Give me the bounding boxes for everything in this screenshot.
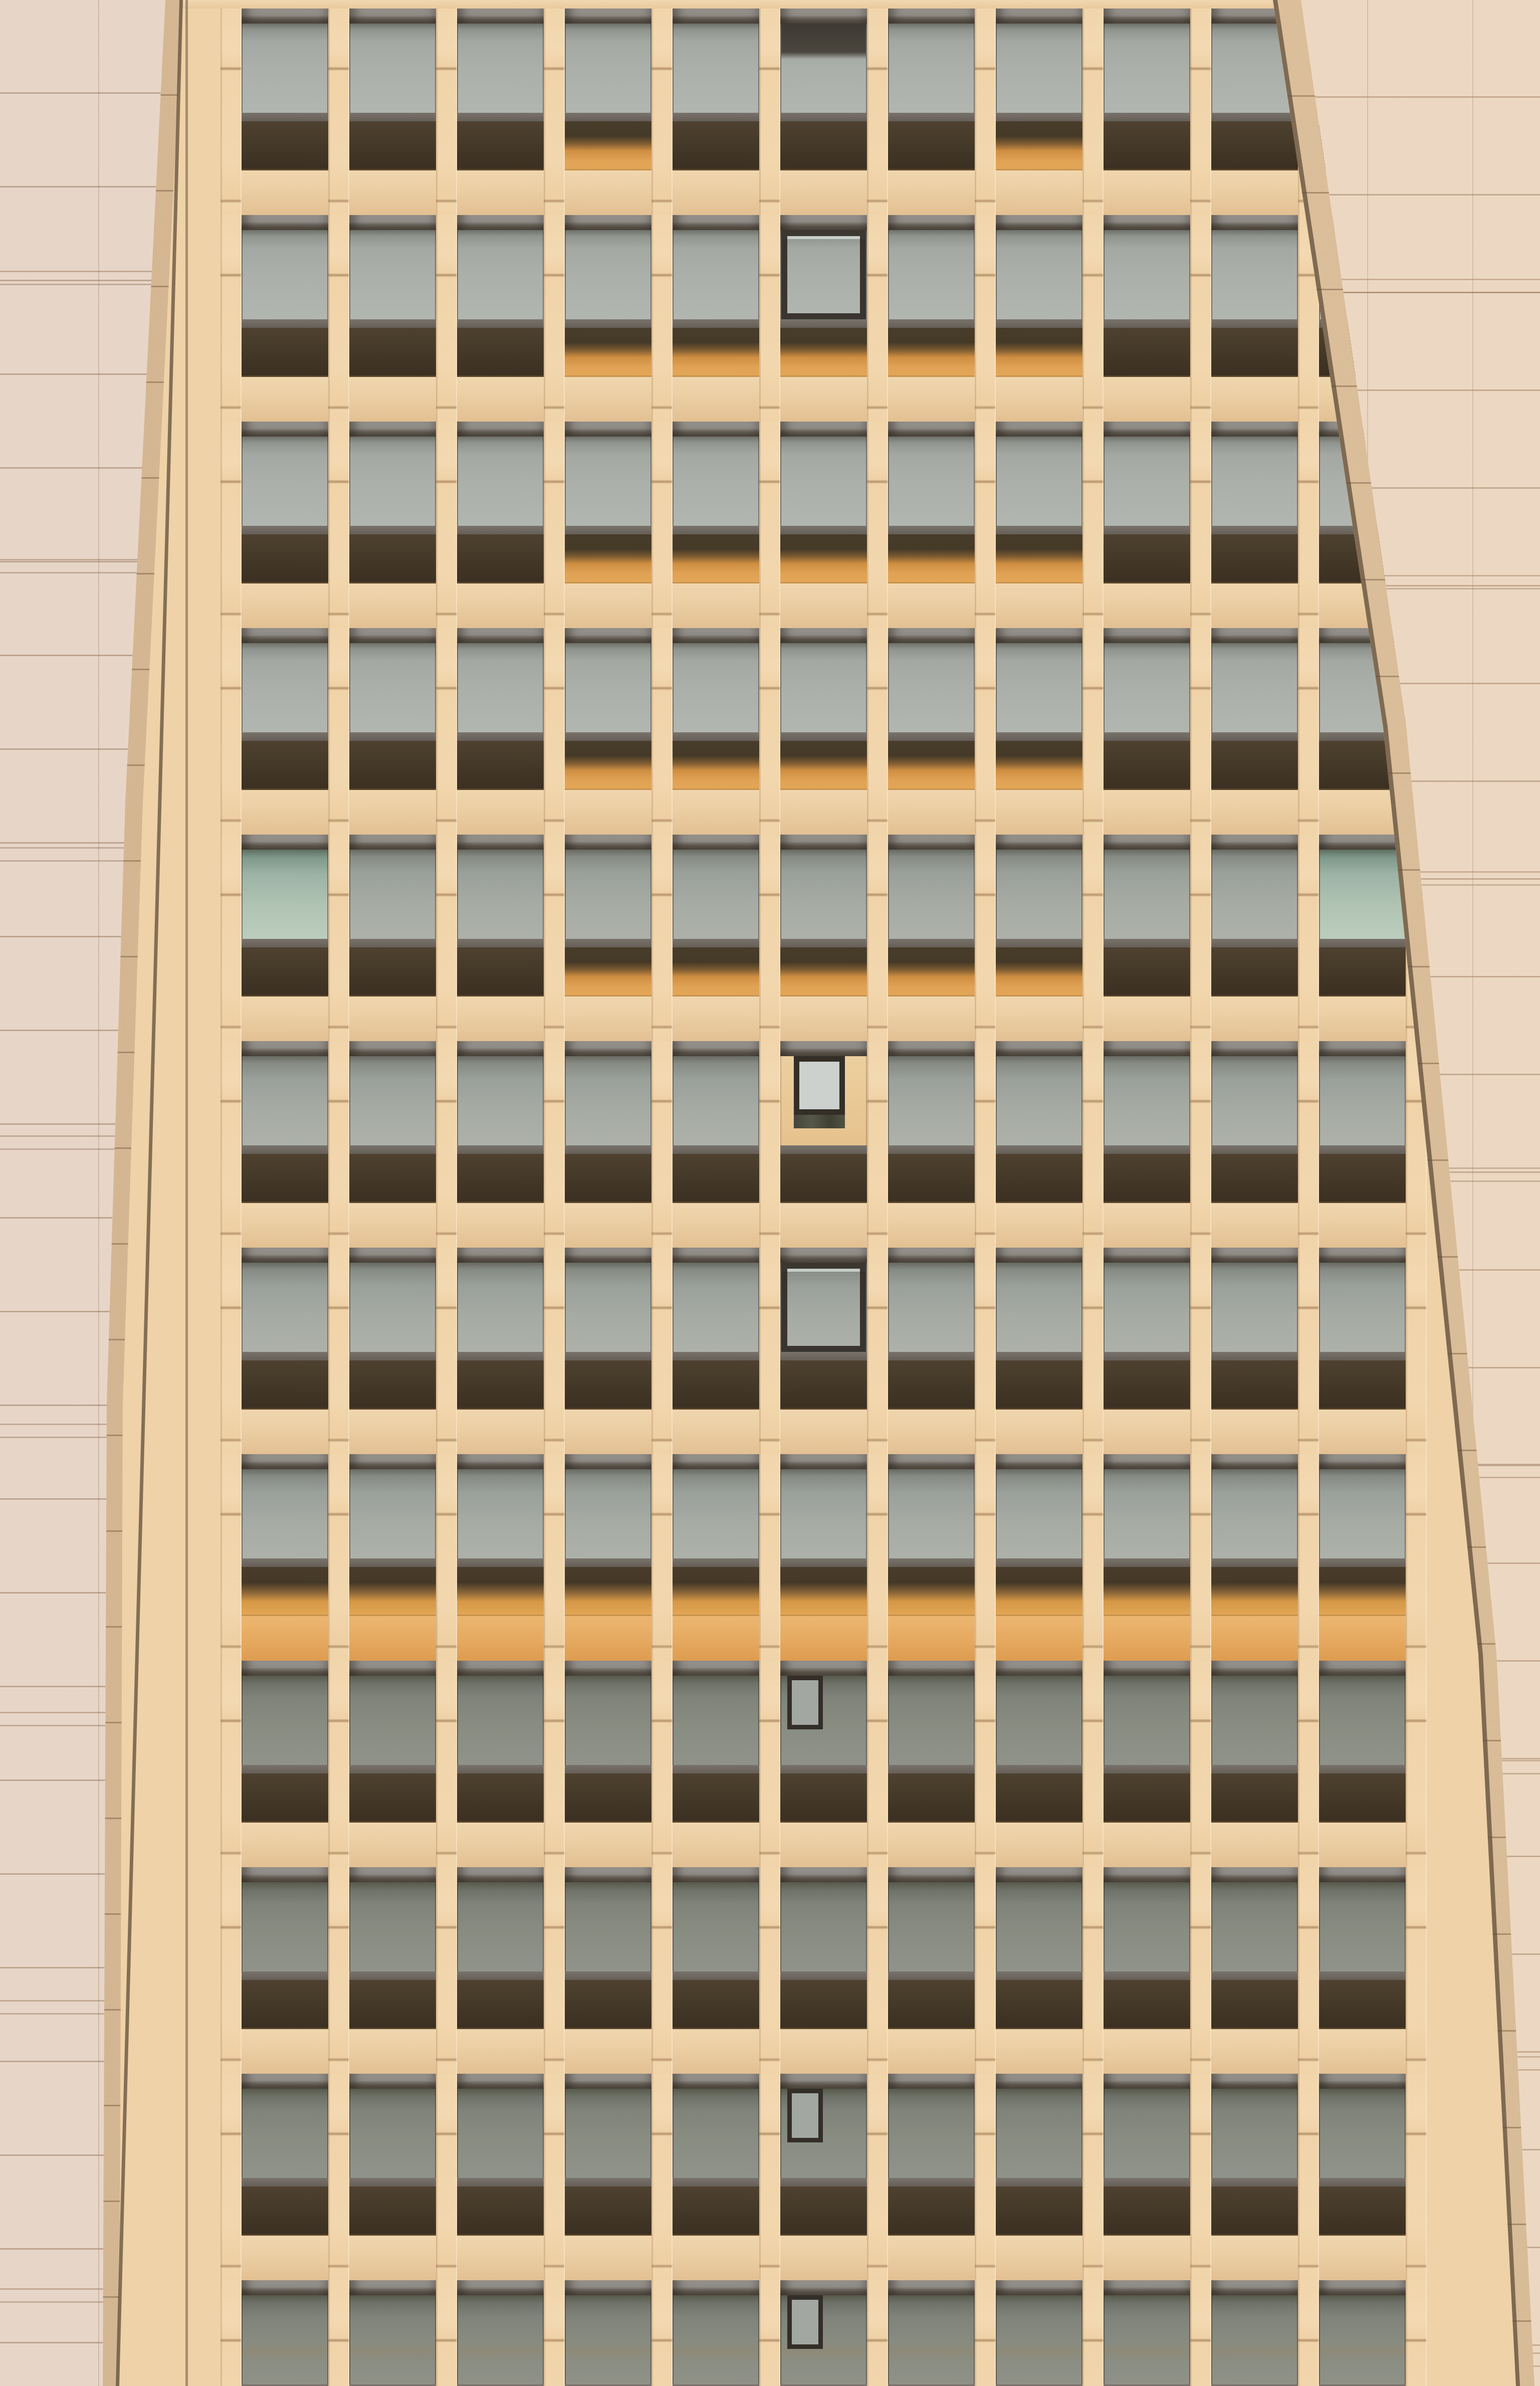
- window-lintel: [1211, 2280, 1298, 2295]
- window-sill: [996, 2178, 1082, 2186]
- mullion: [544, 1661, 565, 1867]
- window-glass: [780, 643, 867, 732]
- window-glass: [457, 1676, 544, 1765]
- recess-panel: [673, 1616, 759, 1661]
- spandrel-panel: [996, 1154, 1082, 1203]
- spandrel-panel: [1104, 1360, 1190, 1410]
- window-glass: [457, 643, 544, 732]
- window-sill: [242, 732, 328, 741]
- spandrel-panel: [780, 947, 867, 997]
- window-sill: [457, 1971, 544, 1980]
- window-glass: [565, 24, 651, 113]
- window-glass: [673, 1676, 759, 1765]
- spandrel-panel: [1104, 1154, 1190, 1203]
- recess-panel: [242, 2029, 328, 2074]
- window-bay: [1104, 1041, 1190, 1248]
- window-bay: [457, 628, 544, 835]
- spandrel-panel: [457, 1773, 544, 1823]
- opened-window-pane: [794, 1056, 844, 1115]
- spandrel-panel: [673, 534, 759, 583]
- window-sill: [242, 1971, 328, 1980]
- recess-panel: [242, 1616, 328, 1661]
- window-glass: [242, 230, 328, 319]
- mullion: [975, 9, 996, 215]
- window-glass: [1104, 1056, 1190, 1145]
- mullion: [436, 9, 457, 215]
- window-bay: [996, 628, 1082, 835]
- recess-panel: [1104, 377, 1190, 422]
- window-glass: [673, 2089, 759, 2178]
- mullion: [1082, 422, 1104, 628]
- recess-panel: [457, 377, 544, 422]
- window-sill: [457, 732, 544, 741]
- window-glass: [457, 2295, 544, 2384]
- window-sill: [780, 1558, 867, 1567]
- spandrel-panel: [242, 534, 328, 583]
- window-sill: [1211, 1971, 1298, 1980]
- window-glass: [888, 1469, 975, 1558]
- mullion: [328, 2280, 349, 2386]
- window-glass: [673, 643, 759, 732]
- mullion: [1190, 835, 1211, 1041]
- window-sill: [349, 1558, 436, 1567]
- window-bay: [673, 1248, 759, 1454]
- window-sill: [565, 113, 651, 121]
- window-glass: [565, 1882, 651, 1971]
- mullion: [328, 1248, 349, 1454]
- window-bay: [888, 1867, 975, 2074]
- window-sill: [673, 526, 759, 534]
- spandrel-panel: [673, 741, 759, 790]
- window-bay: [1104, 422, 1190, 628]
- window-sill: [457, 2178, 544, 2186]
- window-sill: [780, 1352, 867, 1360]
- opened-window-pane: [787, 1676, 823, 1729]
- window-glass: [349, 230, 436, 319]
- mullion: [221, 215, 242, 422]
- mullion: [221, 422, 242, 628]
- spandrel-panel: [996, 1360, 1082, 1410]
- mullion: [867, 1454, 888, 1661]
- window-lintel: [780, 1248, 867, 1263]
- mullion: [221, 1867, 242, 2074]
- recess-panel: [1211, 1410, 1298, 1454]
- recess-panel: [888, 1410, 975, 1454]
- window-lintel: [888, 1867, 975, 1882]
- window-glass: [888, 850, 975, 939]
- window-lintel: [1319, 1041, 1406, 1056]
- spandrel-panel: [349, 1360, 436, 1410]
- window-glass: [457, 850, 544, 939]
- mullion: [651, 835, 673, 1041]
- window-bay: [1104, 1454, 1190, 1661]
- mullion: [867, 835, 888, 1041]
- mullion: [1298, 835, 1319, 1041]
- recess-panel: [673, 583, 759, 628]
- window-lintel: [349, 1041, 436, 1056]
- spandrel-panel: [1319, 1773, 1406, 1823]
- recess-panel: [349, 1823, 436, 1867]
- window-bay: [242, 215, 328, 422]
- mullion: [759, 835, 780, 1041]
- mullion: [544, 1041, 565, 1248]
- window-bay: [996, 2280, 1082, 2386]
- window-lintel: [673, 9, 759, 24]
- window-lintel: [242, 9, 328, 24]
- window-sill: [1211, 1145, 1298, 1154]
- window-sill: [565, 319, 651, 328]
- window-lintel: [1104, 1041, 1190, 1056]
- window-sill: [1211, 1765, 1298, 1773]
- window-glass: [888, 1263, 975, 1352]
- window-bay: [780, 835, 867, 1041]
- window-lintel: [1104, 835, 1190, 850]
- spandrel-panel: [1319, 1567, 1406, 1616]
- window-sill: [457, 939, 544, 947]
- window-bay: [565, 1661, 651, 1867]
- mullion: [867, 9, 888, 215]
- tower-curtain-wall: [115, 0, 1540, 2386]
- mullion: [1298, 628, 1319, 835]
- window-bay: [242, 2280, 328, 2386]
- window-glass: [888, 24, 975, 113]
- spandrel-panel: [888, 741, 975, 790]
- spandrel-panel: [996, 1773, 1082, 1823]
- window-bay: [1104, 2074, 1190, 2280]
- spandrel-panel: [1211, 2186, 1298, 2236]
- window-sill: [780, 939, 867, 947]
- window-lintel: [1211, 835, 1298, 850]
- window-glass: [1104, 850, 1190, 939]
- spandrel-panel: [1211, 121, 1298, 170]
- window-bay: [888, 1454, 975, 1661]
- window-sill: [888, 113, 975, 121]
- window-bay: [888, 1041, 975, 1248]
- window-bay: [673, 2074, 759, 2280]
- window-sill: [996, 319, 1082, 328]
- window-lintel: [565, 1867, 651, 1882]
- window-bay: [457, 215, 544, 422]
- window-lintel: [996, 215, 1082, 230]
- mullion: [975, 1454, 996, 1661]
- spandrel-panel: [673, 1154, 759, 1203]
- spandrel-panel: [349, 1154, 436, 1203]
- window-glass: [565, 1056, 651, 1145]
- window-glass: [673, 1469, 759, 1558]
- mullion: [759, 1041, 780, 1248]
- mullion: [1298, 2074, 1319, 2280]
- window-glass: [888, 1882, 975, 1971]
- window-lintel: [780, 2074, 867, 2089]
- window-lintel: [565, 835, 651, 850]
- spandrel-panel: [349, 741, 436, 790]
- recess-panel: [242, 170, 328, 215]
- spandrel-panel: [888, 947, 975, 997]
- window-box-sill: [794, 1115, 844, 1128]
- window-sill: [673, 319, 759, 328]
- window-glass: [1104, 1469, 1190, 1558]
- window-glass: [673, 1263, 759, 1352]
- window-glass: [996, 1263, 1082, 1352]
- recess-panel: [349, 170, 436, 215]
- mullion: [867, 1867, 888, 2074]
- spandrel-panel: [349, 328, 436, 377]
- window-lintel: [457, 1454, 544, 1469]
- window-lintel: [996, 1454, 1082, 1469]
- window-sill: [242, 1352, 328, 1360]
- window-sill: [1211, 1558, 1298, 1567]
- window-glass: [1211, 1469, 1298, 1558]
- recess-panel: [673, 377, 759, 422]
- recess-panel: [888, 583, 975, 628]
- window-sill: [888, 1558, 975, 1567]
- window-bay: [242, 1041, 328, 1248]
- window-bay: [888, 422, 975, 628]
- window-sill: [457, 1765, 544, 1773]
- window-lintel: [349, 835, 436, 850]
- recess-panel: [780, 997, 867, 1041]
- window-lintel: [242, 1248, 328, 1263]
- window-glass: [996, 850, 1082, 939]
- window-sill: [242, 113, 328, 121]
- recess-panel: [349, 377, 436, 422]
- recess-panel: [565, 583, 651, 628]
- window-bay: [1104, 215, 1190, 422]
- window-bay: [457, 835, 544, 1041]
- recess-panel: [242, 790, 328, 835]
- mullion: [651, 215, 673, 422]
- window-sill: [1104, 113, 1190, 121]
- recess-panel: [1104, 1616, 1190, 1661]
- window-lintel: [349, 1867, 436, 1882]
- window-sill: [1104, 1558, 1190, 1567]
- spandrel-panel: [673, 2186, 759, 2236]
- recess-panel: [457, 1616, 544, 1661]
- recess-panel: [1104, 2029, 1190, 2074]
- spandrel-panel: [1104, 534, 1190, 583]
- floor-row: [115, 1867, 1540, 2074]
- window-lintel: [242, 628, 328, 643]
- mullion: [975, 422, 996, 628]
- recess-panel: [1319, 2029, 1406, 2074]
- window-glass: [1104, 1676, 1190, 1765]
- floor-row: [115, 2280, 1540, 2386]
- recess-panel: [1104, 2236, 1190, 2280]
- window-lintel: [1104, 1867, 1190, 1882]
- recess-panel: [1104, 1410, 1190, 1454]
- window-sill: [1104, 1352, 1190, 1360]
- mullion: [759, 215, 780, 422]
- window-bay: [1211, 1041, 1298, 1248]
- window-lintel: [565, 1454, 651, 1469]
- window-bay: [349, 835, 436, 1041]
- window-lintel: [780, 2280, 867, 2295]
- mullion: [1082, 1867, 1104, 2074]
- window-glass: [349, 2089, 436, 2178]
- mullion: [221, 2280, 242, 2386]
- window-bay: [888, 9, 975, 215]
- mullion: [328, 215, 349, 422]
- spandrel-panel: [780, 2186, 867, 2236]
- window-sill: [1319, 1971, 1406, 1980]
- window-bay: [457, 1867, 544, 2074]
- mullion: [1082, 1661, 1104, 1867]
- window-sill: [242, 319, 328, 328]
- mullion: [867, 1248, 888, 1454]
- window-glass: [1319, 2295, 1406, 2384]
- mullion: [1190, 422, 1211, 628]
- window-lintel: [888, 1248, 975, 1263]
- mullion: [436, 628, 457, 835]
- window-glass: [780, 1882, 867, 1971]
- window-lintel: [1319, 1454, 1406, 1469]
- window-bay: [780, 215, 867, 422]
- mullion: [975, 835, 996, 1041]
- mullion: [1406, 1661, 1427, 1867]
- recess-panel: [1211, 170, 1298, 215]
- window-lintel: [349, 1661, 436, 1676]
- spandrel-panel: [565, 947, 651, 997]
- window-bay: [349, 215, 436, 422]
- recess-panel: [888, 997, 975, 1041]
- mullion: [975, 628, 996, 835]
- window-sill: [780, 2178, 867, 2186]
- mullion: [1082, 2280, 1104, 2386]
- window-lintel: [888, 2280, 975, 2295]
- spandrel-panel: [565, 328, 651, 377]
- window-bay: [996, 1454, 1082, 1661]
- spandrel-panel: [780, 1154, 867, 1203]
- mullion: [1406, 2280, 1427, 2386]
- mullion: [1298, 422, 1319, 628]
- window-bay: [565, 422, 651, 628]
- spandrel-panel: [780, 1773, 867, 1823]
- mullion: [436, 2280, 457, 2386]
- mullion: [1406, 2074, 1427, 2280]
- mullion: [975, 1867, 996, 2074]
- recess-panel: [780, 1410, 867, 1454]
- mullion: [651, 1454, 673, 1661]
- window-bay: [1211, 2074, 1298, 2280]
- window-sill: [349, 319, 436, 328]
- mullion: [1190, 1248, 1211, 1454]
- window-sill: [457, 1558, 544, 1567]
- spandrel-panel: [888, 1773, 975, 1823]
- window-bay: [1319, 1867, 1406, 2074]
- recess-panel: [242, 1410, 328, 1454]
- recess-panel: [673, 1823, 759, 1867]
- window-bay: [996, 9, 1082, 215]
- window-bay: [673, 1661, 759, 1867]
- recess-panel: [1211, 997, 1298, 1041]
- window-sill: [1211, 732, 1298, 741]
- mullion: [1190, 2074, 1211, 2280]
- recess-panel: [1319, 997, 1406, 1041]
- mullion: [1190, 628, 1211, 835]
- spandrel-panel: [996, 741, 1082, 790]
- window-bay: [565, 2074, 651, 2280]
- mullion: [759, 1454, 780, 1661]
- window-sill: [996, 113, 1082, 121]
- mullion: [544, 215, 565, 422]
- spandrel-panel: [996, 534, 1082, 583]
- window-lintel: [996, 422, 1082, 437]
- window-lintel: [457, 215, 544, 230]
- window-bay: [1104, 2280, 1190, 2386]
- mullion: [759, 1661, 780, 1867]
- spandrel-panel: [1319, 1154, 1406, 1203]
- recess-panel: [780, 170, 867, 215]
- window-bay: [242, 1661, 328, 1867]
- window-lintel: [565, 1661, 651, 1676]
- recess-panel: [888, 2236, 975, 2280]
- spandrel-panel: [349, 2186, 436, 2236]
- mullion: [651, 1661, 673, 1867]
- window-bay: [673, 422, 759, 628]
- mullion: [221, 1248, 242, 1454]
- window-glass: [1211, 437, 1298, 526]
- window-bay: [888, 1661, 975, 1867]
- window-sill: [996, 1765, 1082, 1773]
- recess-panel: [242, 1203, 328, 1248]
- window-glass: [565, 1263, 651, 1352]
- recess-panel: [1104, 997, 1190, 1041]
- window-sill: [1211, 319, 1298, 328]
- window-lintel: [242, 835, 328, 850]
- window-bay: [242, 422, 328, 628]
- window-lintel: [1319, 1661, 1406, 1676]
- window-lintel: [565, 1041, 651, 1056]
- window-lintel: [673, 628, 759, 643]
- window-lintel: [996, 1248, 1082, 1263]
- recess-panel: [780, 790, 867, 835]
- window-bay: [457, 2074, 544, 2280]
- window-sill: [242, 939, 328, 947]
- spandrel-panel: [349, 1567, 436, 1616]
- window-glass: [673, 1882, 759, 1971]
- window-glass: [1211, 2089, 1298, 2178]
- window-sill: [1211, 2178, 1298, 2186]
- recess-panel: [1104, 583, 1190, 628]
- window-lintel: [996, 9, 1082, 24]
- mullion: [975, 1661, 996, 1867]
- window-lintel: [1319, 835, 1406, 850]
- window-lintel: [1211, 2074, 1298, 2089]
- mullion: [544, 1867, 565, 2074]
- window-sill: [1211, 1352, 1298, 1360]
- spandrel-panel: [242, 947, 328, 997]
- window-sill: [1319, 1765, 1406, 1773]
- window-glass: [1104, 437, 1190, 526]
- recess-panel: [565, 1410, 651, 1454]
- recess-panel: [673, 1203, 759, 1248]
- mullion: [328, 835, 349, 1041]
- window-bay: [349, 1454, 436, 1661]
- window-bay: [780, 1454, 867, 1661]
- window-lintel: [780, 1661, 867, 1676]
- spandrel-panel: [780, 534, 867, 583]
- mullion: [1082, 628, 1104, 835]
- spandrel-panel: [888, 1567, 975, 1616]
- window-glass: [457, 24, 544, 113]
- mullion: [1082, 1454, 1104, 1661]
- recess-panel: [780, 583, 867, 628]
- mullion: [975, 1041, 996, 1248]
- recess-panel: [457, 1823, 544, 1867]
- window-lintel: [565, 1248, 651, 1263]
- mullion: [1298, 1041, 1319, 1248]
- mullion: [867, 2074, 888, 2280]
